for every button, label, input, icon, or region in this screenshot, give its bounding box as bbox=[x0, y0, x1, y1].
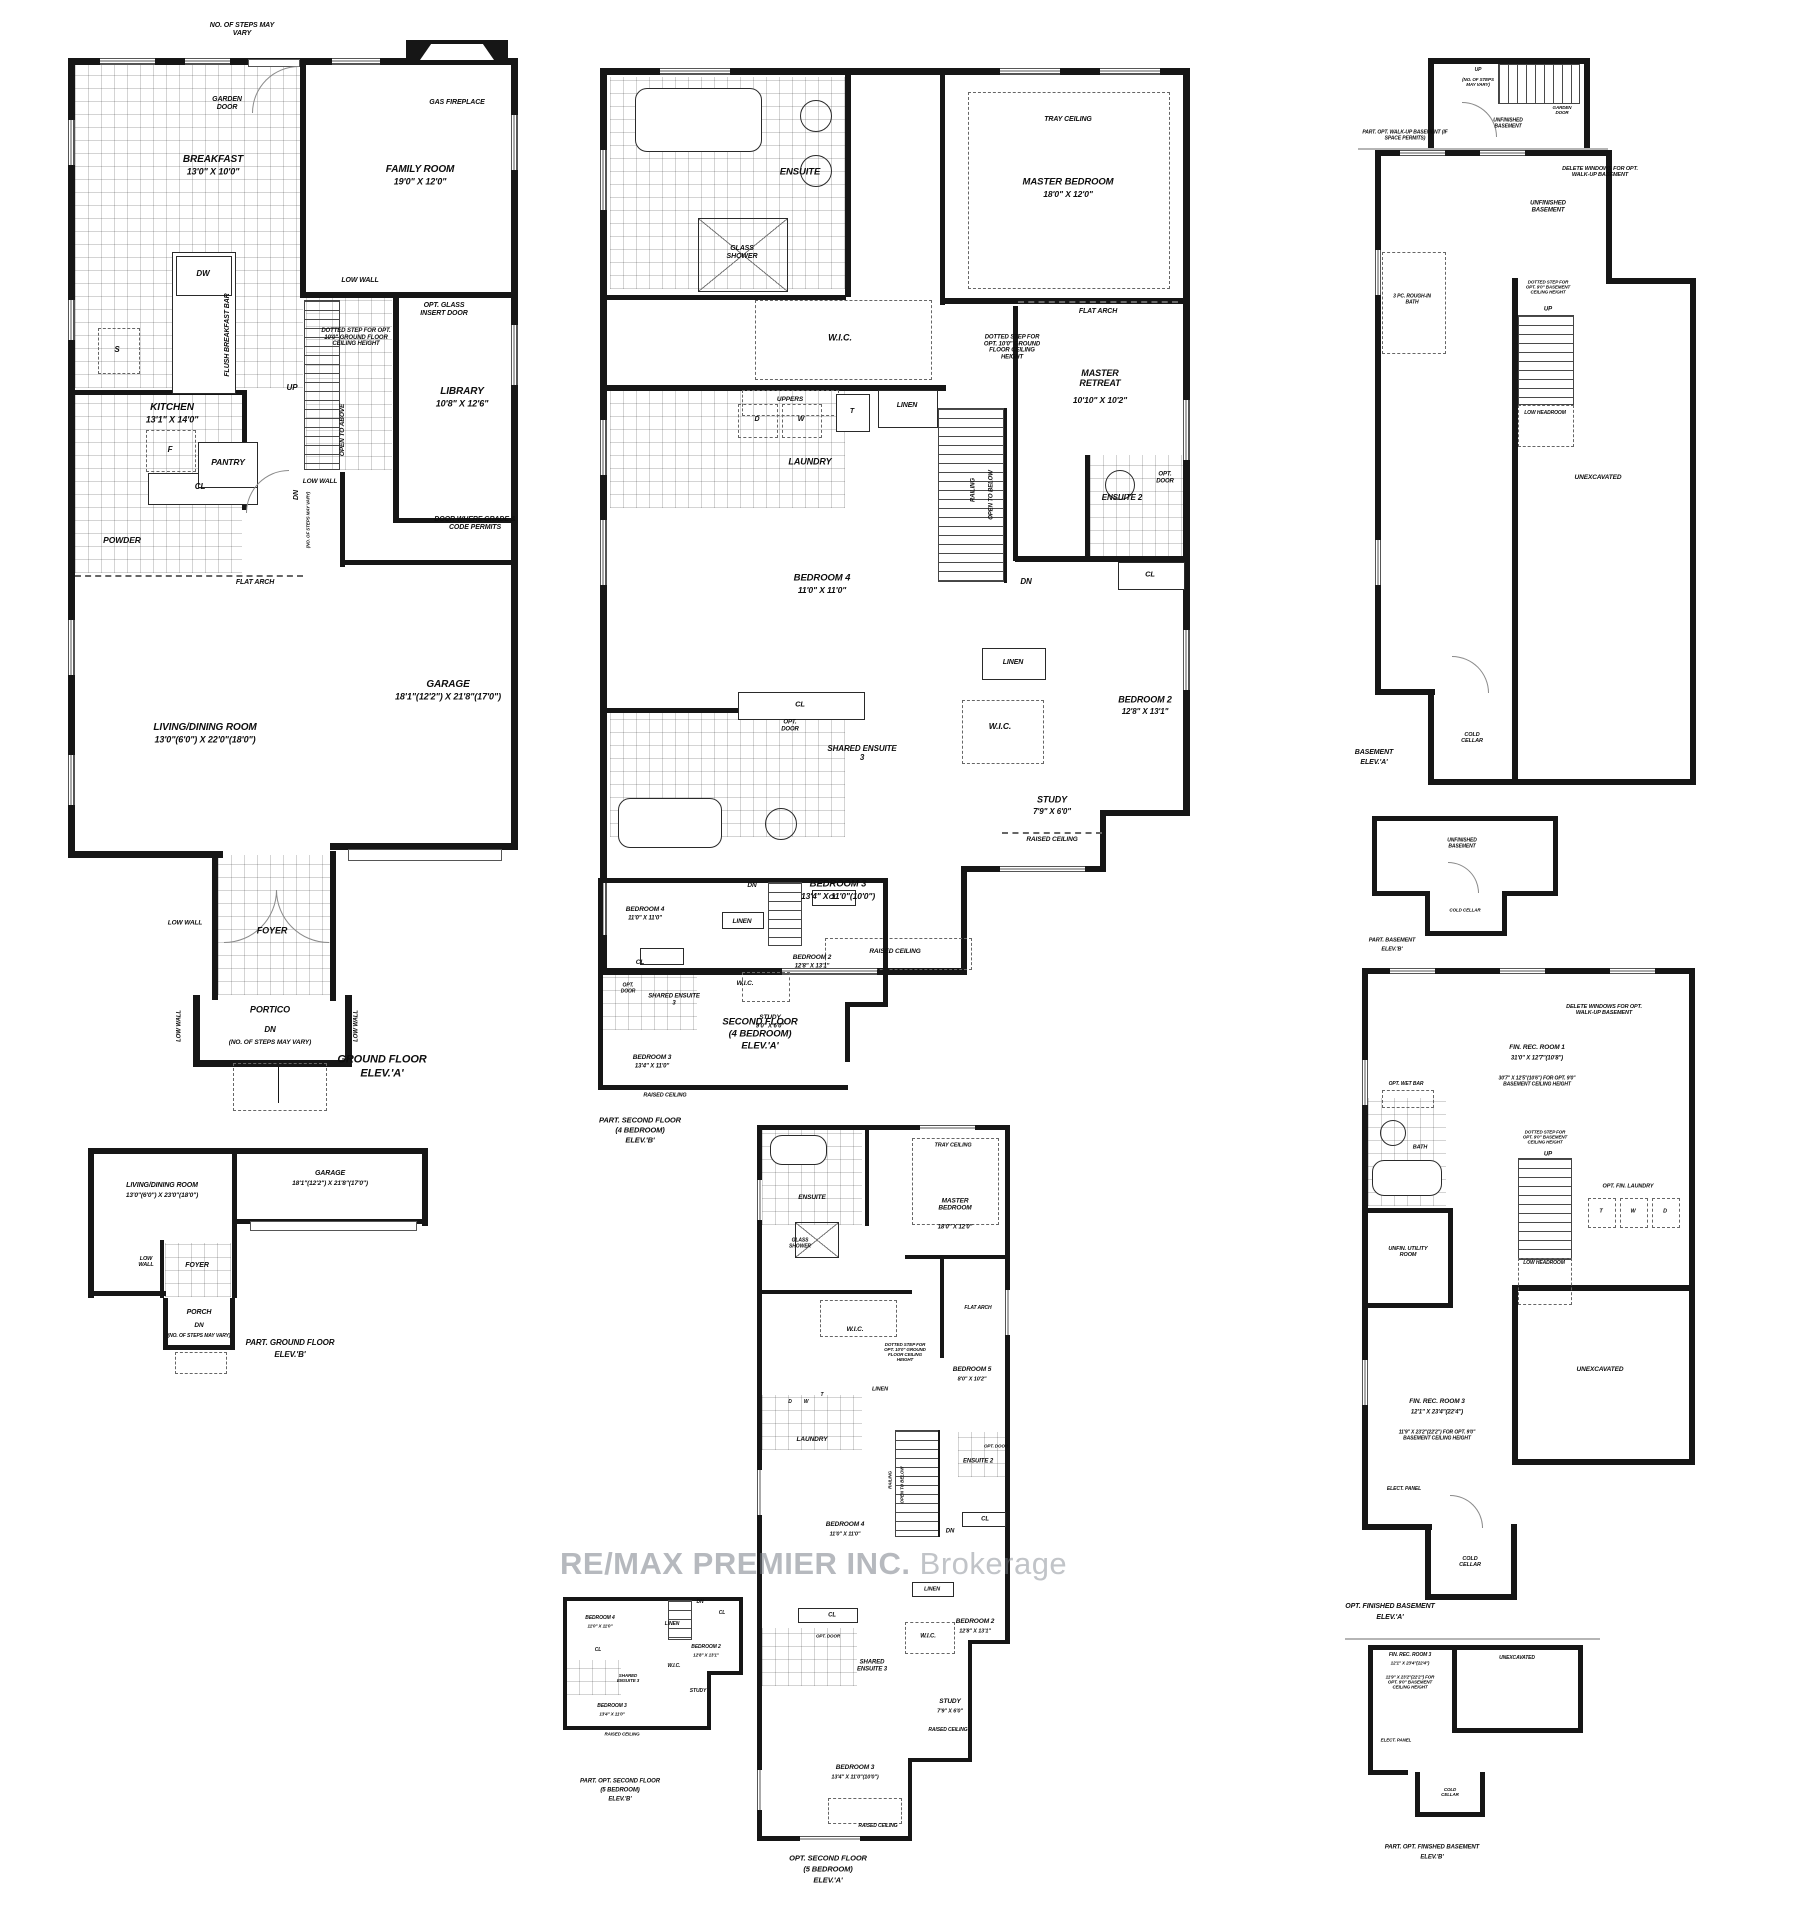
room-dim-bed4: 11'0" X 11'0" bbox=[830, 1532, 861, 1539]
room-dim-bed3: 13'4" X 11'0" bbox=[599, 1711, 624, 1716]
room-dim-master: 18'0" X 12'0" bbox=[938, 1224, 973, 1231]
label-closet: CL bbox=[719, 1610, 725, 1616]
label-uppers: UPPERS bbox=[777, 396, 803, 404]
room-dim-bed4: 11'0" X 11'0" bbox=[628, 915, 662, 922]
room-label-study: STUDY bbox=[1037, 795, 1067, 806]
room-label-cold-cellar: COLD CELLAR bbox=[1435, 1787, 1465, 1797]
annotation-opt-fin-laundry: OPT. FIN. LAUNDRY bbox=[1603, 1184, 1654, 1191]
annotation-tray-ceiling: TRAY CEILING bbox=[934, 1143, 971, 1150]
room-label-wic: W.I.C. bbox=[989, 721, 1011, 731]
room-label-wic: W.I.C. bbox=[920, 1633, 936, 1640]
label-linen: LINEN bbox=[665, 1621, 680, 1627]
caption-second-a-elev: ELEV.'A' bbox=[741, 1040, 778, 1051]
room-label-living: LIVING/DINING ROOM bbox=[126, 1182, 198, 1190]
label-linen: LINEN bbox=[924, 1587, 940, 1594]
label-closet: CL bbox=[829, 894, 837, 902]
room-label-study: STUDY bbox=[759, 1014, 781, 1022]
room-label-unexcavated: UNEXCAVATED bbox=[1575, 474, 1622, 482]
annotation-opt-door: OPT. DOOR bbox=[1149, 471, 1181, 484]
annotation-steps-vary: NO. OF STEPS MAY VARY bbox=[206, 22, 278, 38]
room-label-ensuite2: ENSUITE 2 bbox=[1102, 493, 1142, 503]
room-label-kitchen: KITCHEN bbox=[150, 402, 194, 414]
room-label-bed5: BEDROOM 5 bbox=[953, 1366, 991, 1374]
room-label-unexcavated: UNEXCAVATED bbox=[1499, 1655, 1535, 1661]
annotation-low-wall: LOW WALL bbox=[303, 478, 338, 486]
annotation-raised-ceiling: RAISED CEILING bbox=[928, 1727, 967, 1733]
room-label-portico: PORTICO bbox=[250, 1005, 290, 1016]
room-dim-fin-rec1: 31'0" X 12'7"(10'8") bbox=[1511, 1055, 1563, 1062]
annotation-open-to-below: OPEN TO BELOW bbox=[988, 470, 995, 520]
room-dim-bed3: 13'4" X 11'0" bbox=[635, 1063, 669, 1070]
room-label-unexcavated: UNEXCAVATED bbox=[1577, 1366, 1624, 1374]
room-dim-family: 19'0" X 12'0" bbox=[394, 177, 447, 188]
caption-opt-second-5br-elev: ELEV.'A' bbox=[813, 1876, 842, 1885]
wall bbox=[1415, 1772, 1420, 1817]
room-dim-bed3: 13'4" X 11'0"(10'0") bbox=[801, 891, 875, 901]
room-dim-bed2: 12'8" X 13'1" bbox=[1122, 707, 1169, 717]
label-dn: DN bbox=[1020, 577, 1031, 587]
caption-part-basement-b-elev: ELEV.'B' bbox=[1381, 947, 1402, 954]
annotation-opt-door: OPT. DOOR bbox=[615, 983, 641, 994]
label-linen: LINEN bbox=[1003, 659, 1024, 667]
label-closet: CL bbox=[795, 700, 805, 709]
annotation-low-wall: LOW WALL bbox=[353, 1010, 360, 1042]
caption-part-ground-b: PART. GROUND FLOOR bbox=[246, 1338, 335, 1348]
caption-basement-a: BASEMENT bbox=[1355, 749, 1393, 757]
annotation-low-wall: LOW WALL bbox=[176, 1010, 183, 1042]
room-label-utility: UNFIN. UTILITY ROOM bbox=[1387, 1246, 1429, 1258]
room-dim-fin-rec3: 12'1" X 23'4"(22'4") bbox=[1411, 1409, 1463, 1416]
annotation-flat-arch: FLAT ARCH bbox=[236, 579, 274, 587]
wall bbox=[1415, 1812, 1485, 1817]
label-closet: CL bbox=[636, 959, 644, 967]
caption-part-opt-second-5br-2: (5 BEDROOM) bbox=[600, 1787, 639, 1794]
label-sink: S bbox=[114, 345, 119, 355]
room-dim-bed2: 12'8" X 13'1" bbox=[795, 963, 830, 970]
annotation-low-headroom: LOW HEADROOM bbox=[1523, 411, 1567, 417]
annotation-raised-ceiling: RAISED CEILING bbox=[869, 948, 920, 956]
label-up: UP bbox=[1544, 1151, 1552, 1158]
room-label-shared-ensuite3: SHARED ENSUITE 3 bbox=[826, 745, 898, 763]
room-label-foyer: FOYER bbox=[257, 926, 288, 937]
label-tub: T bbox=[1599, 1209, 1602, 1216]
label-linen: LINEN bbox=[732, 918, 751, 926]
label-washer: W bbox=[798, 416, 805, 424]
annotation-low-wall: LOW WALL bbox=[341, 277, 378, 285]
room-label-library: LIBRARY bbox=[440, 386, 484, 398]
caption-walkup-note: PART. OPT. WALK-UP BASEMENT (IF SPACE PE… bbox=[1361, 130, 1449, 141]
label-linen: LINEN bbox=[872, 1387, 888, 1394]
annotation-dotted-step9: DOTTED STEP FOR OPT. 9'0" BASEMENT CEILI… bbox=[1522, 1129, 1568, 1144]
room-label-living: LIVING/DINING ROOM bbox=[153, 722, 256, 734]
room-label-laundry: LAUNDRY bbox=[797, 1436, 828, 1444]
caption-ground-floor-a: GROUND FLOOR bbox=[337, 1053, 426, 1066]
room-label-shared-ensuite3: SHARED ENSUITE 3 bbox=[610, 1673, 646, 1683]
label-washer: W bbox=[804, 1399, 809, 1405]
room-label-wic: W.I.C. bbox=[847, 1326, 864, 1334]
label-up: UP bbox=[1544, 306, 1552, 313]
annotation-raised-ceiling: RAISED CEILING bbox=[604, 1731, 639, 1736]
watermark-suffix: Brokerage bbox=[911, 1546, 1068, 1581]
caption-part-opt-second-5br-elev: ELEV.'B' bbox=[608, 1796, 631, 1803]
room-label-powder: POWDER bbox=[103, 535, 141, 545]
label-dryer: D bbox=[755, 416, 760, 424]
room-dim-bed2: 12'8" X 13'1" bbox=[959, 1629, 991, 1636]
annotation-wet-bar: OPT. WET BAR bbox=[1389, 1081, 1424, 1087]
annotation-opt-door: OPT. DOOR bbox=[774, 719, 806, 732]
annotation-steps-note: (NO. OF STEPS MAY VARY) bbox=[305, 492, 310, 548]
caption-opt-fin-basement-elev: ELEV.'A' bbox=[1376, 1614, 1403, 1622]
label-tub: T bbox=[850, 408, 854, 416]
annotation-garden-door: GARDEN DOOR bbox=[1548, 105, 1576, 115]
annotation-rough-in: 3 PC. ROUGH-IN BATH bbox=[1393, 294, 1431, 305]
room-label-wic: W.I.C. bbox=[737, 980, 754, 988]
room-label-retreat: MASTER RETREAT bbox=[1064, 368, 1136, 388]
room-label-cold-cellar: COLD CELLAR bbox=[1453, 732, 1491, 744]
annotation-gas-fireplace: GAS FIREPLACE bbox=[429, 99, 484, 107]
room-label-cold-cellar: COLD CELLAR bbox=[1449, 907, 1481, 912]
room-label-bed3: BEDROOM 3 bbox=[836, 1764, 874, 1772]
label-glass-shower: GLASS SHOWER bbox=[784, 1238, 816, 1249]
break-line bbox=[1345, 1638, 1600, 1640]
annotation-dotted-step9: DOTTED STEP FOR OPT. 9'0" BASEMENT CEILI… bbox=[1525, 279, 1571, 294]
caption-part-opt-fin-basement: PART. OPT. FINISHED BASEMENT bbox=[1385, 1844, 1479, 1851]
label-closet: CL bbox=[828, 1612, 836, 1619]
room-label-garage: GARAGE bbox=[315, 1170, 345, 1178]
label-dryer: D bbox=[788, 1399, 792, 1405]
room-label-ensuite2: ENSUITE 2 bbox=[963, 1458, 993, 1465]
room-label-breakfast: BREAKFAST bbox=[183, 154, 243, 166]
room-label-bed2: BEDROOM 2 bbox=[956, 1618, 994, 1626]
room-subdim-fin-rec3: 11'9" X 23'2"(22'2") FOR OPT. 9'0" BASEM… bbox=[1381, 1674, 1439, 1689]
caption-part-second-b-elev: ELEV.'B' bbox=[625, 1136, 654, 1145]
room-label-bed2: BEDROOM 2 bbox=[793, 954, 831, 962]
room-label-bed2: BEDROOM 2 bbox=[691, 1644, 720, 1650]
label-glass-shower: GLASS SHOWER bbox=[720, 245, 764, 261]
watermark-brand: RE/MAX PREMIER INC. bbox=[560, 1546, 911, 1581]
annotation-flat-arch: FLAT ARCH bbox=[1079, 308, 1117, 316]
wall bbox=[1368, 1770, 1408, 1775]
room-dim-breakfast: 13'0" X 10'0" bbox=[187, 167, 240, 178]
label-dn: DN bbox=[747, 882, 756, 890]
wall bbox=[1578, 1645, 1583, 1733]
label-dryer: D bbox=[1663, 1209, 1667, 1216]
label-linen: LINEN bbox=[897, 402, 918, 410]
annotation-flat-arch: FLAT ARCH bbox=[964, 1305, 991, 1311]
caption-part-opt-second-5br: PART. OPT. SECOND FLOOR bbox=[580, 1778, 660, 1785]
annotation-raised-ceiling: RAISED CEILING bbox=[858, 1823, 897, 1829]
room-label-ensuite: ENSUITE bbox=[798, 1194, 825, 1202]
annotation-elect-panel: ELECT. PANEL bbox=[1387, 1486, 1421, 1492]
room-dim-fin-rec3: 12'1" X 23'4"(22'4") bbox=[1391, 1660, 1430, 1665]
annotation-opt-glass-door: OPT. GLASS INSERT DOOR bbox=[413, 302, 475, 318]
wall bbox=[1452, 1728, 1582, 1733]
room-label-bed4: BEDROOM 4 bbox=[585, 1615, 614, 1621]
label-tub: T bbox=[821, 1392, 824, 1398]
room-label-wic: W.I.C. bbox=[828, 333, 852, 344]
room-dim-living: 13'0"(6'0") X 23'0"(18'0") bbox=[126, 1192, 198, 1200]
annotation-opt-door: OPT. DOOR bbox=[815, 1633, 841, 1638]
label-washer: W bbox=[1630, 1209, 1635, 1216]
annotation-steps-note: (NO. OF STEPS MAY VARY) bbox=[1460, 77, 1496, 87]
floor-plan-sheet: NO. OF STEPS MAY VARY GARDEN DOOR GAS FI… bbox=[0, 0, 1796, 1920]
caption-part-second-b-2: (4 BEDROOM) bbox=[615, 1126, 664, 1135]
label-closet: CL bbox=[1145, 570, 1155, 579]
label-up: UP bbox=[1475, 67, 1482, 73]
wall bbox=[1452, 1645, 1582, 1650]
room-label-fin-rec3: FIN. REC. ROOM 3 bbox=[1409, 1398, 1464, 1406]
room-label-study: STUDY bbox=[939, 1698, 961, 1706]
wall bbox=[1368, 1645, 1456, 1650]
annotation-tray-ceiling: TRAY CEILING bbox=[1044, 116, 1092, 124]
room-label-pantry: PANTRY bbox=[211, 457, 245, 467]
label-dn: DN bbox=[293, 490, 301, 500]
room-label-unfinished: UNFINISHED BASEMENT bbox=[1480, 118, 1536, 129]
room-dim-library: 10'8" X 12'6" bbox=[436, 399, 489, 410]
room-dim-garage: 18'1"(12'2") X 21'8"(17'0") bbox=[292, 1180, 368, 1188]
annotation-dotted-step: DOTTED STEP FOR OPT. 10'0" GROUND FLOOR … bbox=[318, 328, 394, 348]
room-label-foyer: FOYER bbox=[185, 1262, 209, 1270]
room-label-fin-rec1: FIN. REC. ROOM 1 bbox=[1509, 1044, 1564, 1052]
room-label-porch: PORCH bbox=[187, 1309, 212, 1317]
annotation-garden-door: GARDEN DOOR bbox=[203, 96, 251, 112]
room-dim-bed3: 13'4" X 11'0"(10'0") bbox=[831, 1775, 878, 1782]
annotation-low-headroom: LOW HEADROOM bbox=[1522, 1261, 1566, 1267]
room-label-fin-rec3: FIN. REC. ROOM 3 bbox=[1389, 1652, 1431, 1658]
label-dn: DN bbox=[194, 1322, 203, 1330]
annotation-opt-door: OPT. DOOR bbox=[983, 1443, 1009, 1448]
annotation-dotted-step: DOTTED STEP FOR OPT. 10'0" GROUND FLOOR … bbox=[981, 335, 1043, 362]
label-dishwasher: DW bbox=[196, 269, 209, 279]
annotation-raised-ceiling: RAISED CEILING bbox=[643, 1093, 686, 1100]
caption-part-opt-fin-basement-elev: ELEV.'B' bbox=[1420, 1854, 1443, 1861]
room-dim-living: 13'0"(6'0") X 22'0"(18'0") bbox=[154, 735, 255, 746]
room-dim-study: 7'9" X 6'0" bbox=[937, 1709, 963, 1716]
room-label-bed4: BEDROOM 4 bbox=[626, 906, 664, 914]
room-label-shared-ensuite3: SHARED ENSUITE 3 bbox=[848, 1659, 896, 1672]
room-label-laundry: LAUNDRY bbox=[788, 457, 831, 468]
label-closet: CL bbox=[981, 1516, 989, 1523]
room-subdim-fin-rec3: 11'9" X 23'2"(22'2") FOR OPT. 9'0" BASEM… bbox=[1396, 1430, 1478, 1441]
room-subdim-fin-rec1: 30'7" X 12'5"(10'6") FOR OPT. 9'0" BASEM… bbox=[1491, 1076, 1583, 1087]
label-dn: DN bbox=[696, 1599, 703, 1605]
annotation-delete-windows: DELETE WINDOWS FOR OPT. WALK-UP BASEMENT bbox=[1559, 1004, 1649, 1016]
label-flush-breakfast-bar: FLUSH BREAKFAST BAR bbox=[224, 293, 232, 376]
annotation-low-wall: LOW WALL bbox=[167, 919, 203, 926]
wall bbox=[1368, 1645, 1373, 1775]
label-closet: CL bbox=[595, 1647, 601, 1653]
room-dim-garage: 18'1"(12'2") X 21'8"(17'0") bbox=[395, 692, 501, 703]
wall bbox=[1452, 1645, 1457, 1733]
caption-opt-second-5br-2: (5 BEDROOM) bbox=[803, 1865, 852, 1874]
room-dim-bed4: 11'0" X 11'0" bbox=[798, 585, 846, 595]
annotation-low-wall: LOW WALL bbox=[132, 1256, 160, 1268]
caption-ground-floor-a-elev: ELEV.'A' bbox=[360, 1067, 403, 1080]
room-label-bed3: BEDROOM 3 bbox=[633, 1054, 671, 1062]
room-dim-study: 9'0" X 6'0" bbox=[756, 1023, 784, 1030]
brokerage-watermark: RE/MAX PREMIER INC. Brokerage bbox=[560, 1546, 1067, 1582]
room-label-shared-ensuite3: SHARED ENSUITE 3 bbox=[648, 993, 700, 1006]
caption-opt-fin-basement: OPT. FINISHED BASEMENT bbox=[1345, 1603, 1434, 1611]
label-closet: CL bbox=[195, 482, 205, 492]
annotation-open-to-below: OPEN TO BELOW bbox=[899, 1467, 904, 1504]
caption-part-ground-b-elev: ELEV.'B' bbox=[274, 1350, 305, 1360]
room-label-master: MASTER BEDROOM bbox=[927, 1198, 983, 1213]
annotation-steps-note: (NO. OF STEPS MAY VARY) bbox=[229, 1039, 311, 1047]
caption-part-second-b: PART. SECOND FLOOR bbox=[599, 1116, 681, 1125]
room-dim-bed2: 12'8" X 13'1" bbox=[693, 1652, 719, 1657]
room-label-family: FAMILY ROOM bbox=[386, 164, 455, 176]
room-label-bed2: BEDROOM 2 bbox=[1118, 695, 1172, 706]
room-label-master: MASTER BEDROOM bbox=[1023, 176, 1114, 187]
caption-opt-second-5br: OPT. SECOND FLOOR bbox=[789, 1854, 867, 1863]
room-dim-retreat: 10'10" X 10'2" bbox=[1073, 395, 1127, 405]
annotation-delete-windows: DELETE WINDOWS FOR OPT. WALK-UP BASEMENT bbox=[1556, 166, 1644, 178]
annotation-raised-ceiling: RAISED CEILING bbox=[1026, 836, 1077, 844]
room-label-bed3: BEDROOM 3 bbox=[810, 878, 867, 889]
room-dim-study: 7'9" X 6'0" bbox=[1033, 807, 1071, 817]
room-label-bath: BATH bbox=[1413, 1145, 1427, 1152]
room-label-bed3: BEDROOM 3 bbox=[597, 1703, 626, 1709]
room-dim-master: 18'0" X 12'0" bbox=[1043, 189, 1093, 199]
room-label-unfinished: UNFINISHED BASEMENT bbox=[1436, 838, 1488, 849]
room-label-bed4: BEDROOM 4 bbox=[794, 572, 851, 583]
annotation-open-to-above: OPEN TO ABOVE bbox=[339, 404, 347, 457]
room-dim-kitchen: 13'1" X 14'0" bbox=[146, 415, 199, 426]
annotation-dotted-step: DOTTED STEP FOR OPT. 10'0" GROUND FLOOR … bbox=[884, 1342, 926, 1362]
annotation-railing: RAILING bbox=[970, 478, 977, 502]
room-dim-bed4: 11'0" X 11'0" bbox=[588, 1623, 613, 1628]
annotation-railing: RAILING bbox=[887, 1471, 892, 1489]
room-label-cold-cellar: COLD CELLAR bbox=[1451, 1556, 1489, 1568]
room-label-unfinished: UNFINISHED BASEMENT bbox=[1517, 200, 1579, 213]
caption-part-basement-b: PART. BASEMENT bbox=[1369, 938, 1416, 945]
label-up: UP bbox=[287, 383, 298, 393]
room-label-garage: GARAGE bbox=[426, 679, 469, 691]
annotation-door-grade: DOOR WHERE GRADE & CODE PERMITS bbox=[431, 516, 519, 532]
annotation-elect-panel: ELECT. PANEL bbox=[1381, 1737, 1412, 1742]
annotation-steps-note: (NO. OF STEPS MAY VARY) bbox=[168, 1333, 231, 1339]
room-dim-bed5: 8'0" X 10'2" bbox=[958, 1377, 987, 1384]
caption-basement-a-elev: ELEV.'A' bbox=[1360, 759, 1387, 767]
room-label-ensuite: ENSUITE bbox=[780, 166, 820, 177]
room-label-wic: W.I.C. bbox=[668, 1663, 681, 1669]
label-dn: DN bbox=[264, 1025, 275, 1035]
label-fridge: F bbox=[168, 445, 173, 455]
room-label-study: STUDY bbox=[690, 1688, 706, 1694]
room-label-bed4: BEDROOM 4 bbox=[826, 1521, 864, 1529]
wall bbox=[1480, 1772, 1485, 1817]
label-dn: DN bbox=[946, 1528, 954, 1535]
